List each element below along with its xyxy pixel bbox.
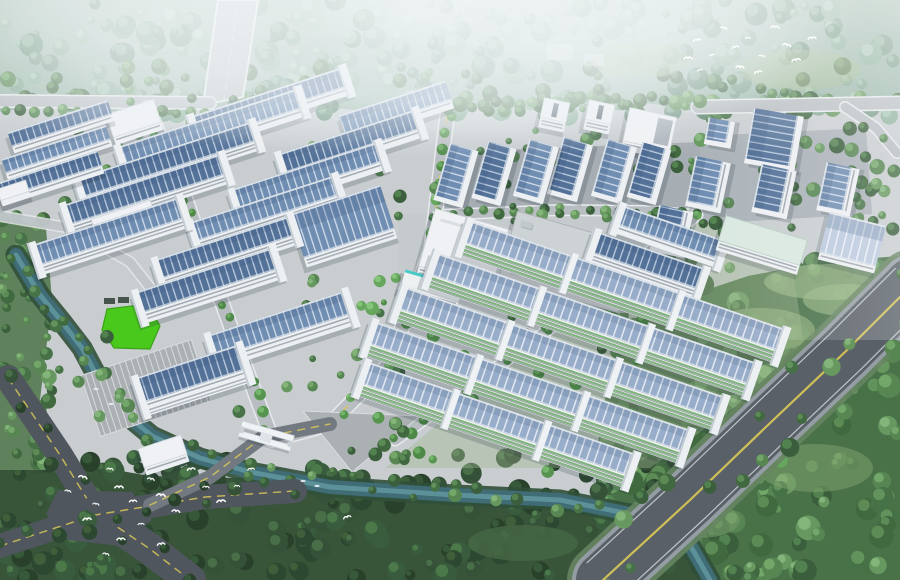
fog-layer bbox=[0, 0, 900, 580]
industrial-park-scene bbox=[0, 0, 900, 580]
aerial-rendering bbox=[0, 0, 900, 580]
